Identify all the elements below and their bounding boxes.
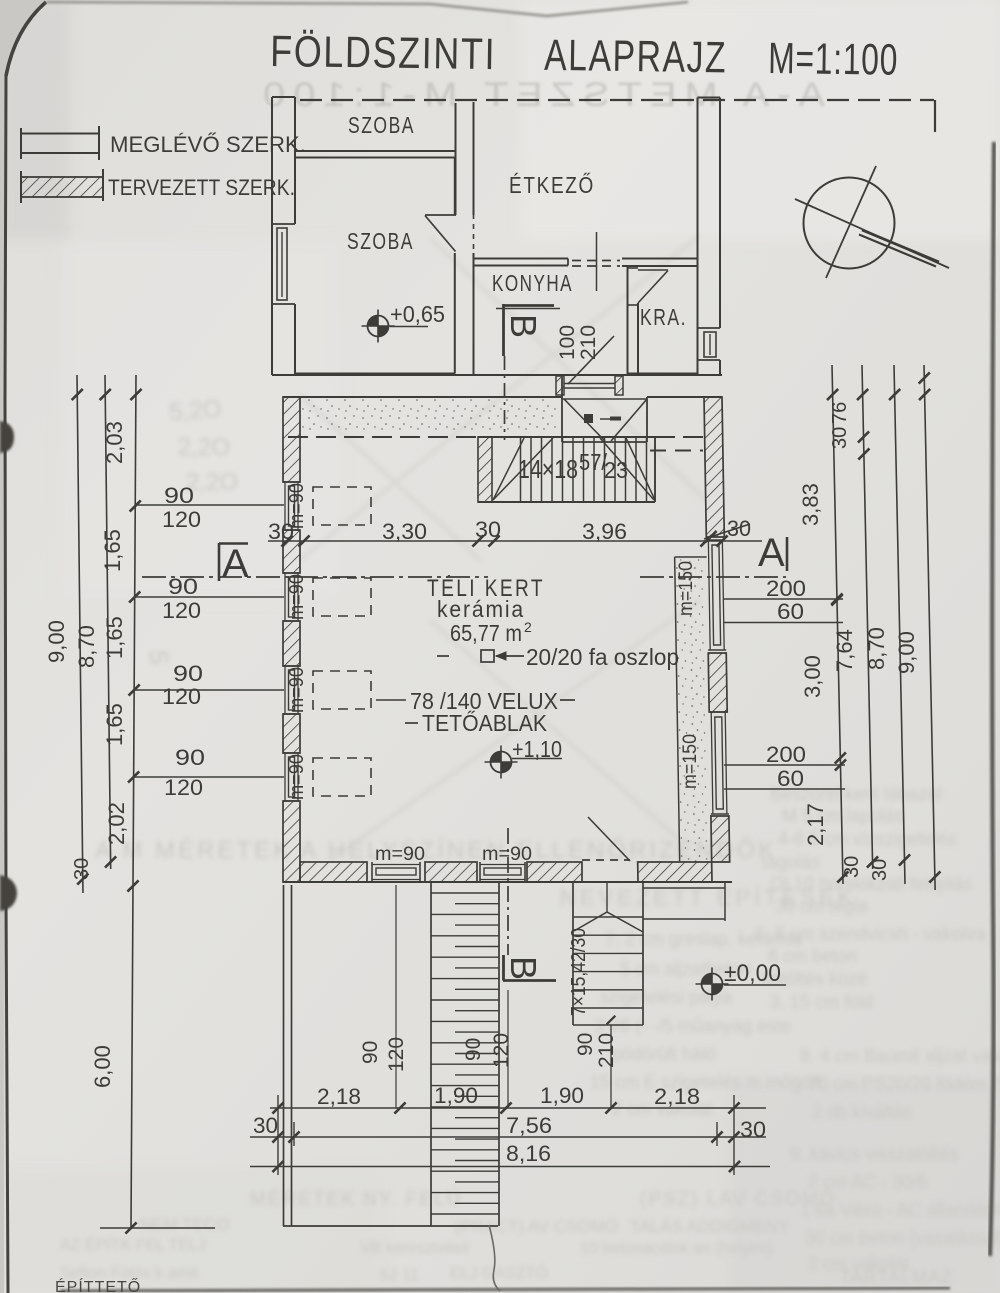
svg-text:3. 15 cm föld: 3. 15 cm föld	[770, 992, 873, 1012]
svg-text:VB keresztviteli: VB keresztviteli	[360, 1240, 469, 1257]
svg-text:210: 210	[595, 1033, 618, 1068]
svg-text:TETŐABLAK: TETŐABLAK	[422, 710, 548, 736]
svg-text:9. kavics visszatöltés: 9. kavics visszatöltés	[790, 1144, 958, 1164]
svg-text:1,65: 1,65	[102, 703, 127, 746]
svg-text:ELJ GASZTÓ: ELJ GASZTÓ	[450, 1263, 548, 1282]
svg-text:90: 90	[462, 1038, 485, 1061]
svg-text:2,02: 2,02	[104, 802, 129, 845]
svg-text:m=90: m=90	[286, 754, 308, 800]
svg-text:B: B	[503, 314, 544, 338]
svg-text:AZ ÉPÍTK FEL TELJ: AZ ÉPÍTK FEL TELJ	[60, 1235, 206, 1254]
svg-text:10 betonacélok an (helyen): 10 betonacélok an (helyen)	[580, 1240, 773, 1257]
svg-text:7,56: 7,56	[506, 1113, 552, 1138]
svg-text:ALAPRAJZ: ALAPRAJZ	[544, 31, 728, 83]
svg-text:8,16: 8,16	[506, 1141, 551, 1166]
svg-text:7. 2 cm greslap. kerámia: 7. 2 cm greslap. kerámia	[605, 929, 803, 949]
svg-text:6,00: 6,00	[90, 1045, 115, 1088]
svg-text:30: 30	[841, 856, 863, 878]
svg-text:30: 30	[71, 858, 93, 880]
svg-text:m=90: m=90	[482, 844, 532, 865]
svg-text:ÉTKEZŐ: ÉTKEZŐ	[509, 172, 595, 198]
svg-text:1,90: 1,90	[540, 1083, 584, 1108]
svg-text:2 db kiváltás: 2 db kiváltás	[812, 1102, 912, 1122]
svg-text:A: A	[758, 531, 785, 575]
svg-text:TERVEZETT SZERK.: TERVEZETT SZERK.	[108, 175, 295, 200]
svg-text:KRA.: KRA.	[640, 304, 687, 330]
svg-text:A M MÉRETEK A HELYSZÍNEN ELL: A M MÉRETEK A HELYSZÍNEN ELLENŐRIZENDŐK	[95, 837, 777, 864]
svg-text:90: 90	[173, 661, 203, 686]
svg-text:52 11: 52 11	[380, 1267, 419, 1284]
svg-text:65,77 m: 65,77 m	[450, 620, 522, 646]
svg-text:100: 100	[556, 325, 579, 360]
svg-text:1,65: 1,65	[100, 529, 125, 572]
svg-text:M 5 cm lapolás: M 5 cm lapolás	[782, 806, 903, 826]
svg-text:TARTALMAZ: TARTALMAZ	[840, 1267, 953, 1287]
svg-text:m=90: m=90	[375, 844, 425, 865]
svg-text:M=1:100: M=1:100	[768, 34, 899, 85]
svg-text:120: 120	[162, 598, 201, 623]
svg-text:30: 30	[253, 1113, 278, 1138]
svg-text:2,18: 2,18	[654, 1084, 700, 1109]
svg-text:30: 30	[268, 519, 294, 544]
svg-text:2,18: 2,18	[317, 1084, 361, 1109]
svg-text:NEM TECO: NEM TECO	[140, 1215, 229, 1234]
svg-text:A-A METSZET M-1:100: A-A METSZET M-1:100	[255, 76, 825, 114]
svg-text:SZOBA: SZOBA	[348, 112, 415, 138]
svg-text:TALÁS ADDIGMENY: TALÁS ADDIGMENY	[630, 1217, 789, 1236]
svg-text:A: A	[222, 542, 249, 586]
svg-text:m=150: m=150	[680, 734, 701, 789]
svg-text:5,2O: 5,2O	[169, 395, 223, 426]
svg-text:8. 4 cm Baumit aljzat vakola: 8. 4 cm Baumit aljzat vakolat	[800, 1046, 1000, 1066]
svg-text:+0,65: +0,65	[390, 301, 445, 327]
svg-text:(PSZ) LAV CSOMÓ: (PSZ) LAV CSOMÓ	[640, 1188, 836, 1210]
svg-text:90: 90	[574, 1033, 597, 1056]
svg-text:B: B	[503, 956, 544, 980]
svg-text:200: 200	[766, 576, 806, 601]
svg-text:2: 2	[524, 619, 532, 635]
svg-text:90: 90	[164, 483, 194, 508]
svg-text:6 cm beton: 6 cm beton	[768, 946, 857, 966]
svg-text:3,96: 3,96	[582, 519, 627, 544]
svg-text:m=150: m=150	[676, 561, 697, 616]
svg-text:2,17: 2,17	[803, 803, 828, 846]
svg-text:14×18: 14×18	[518, 454, 578, 484]
svg-text:m=90: m=90	[286, 667, 308, 713]
svg-text:SZOBA: SZOBA	[347, 228, 414, 254]
svg-text:120: 120	[162, 507, 201, 532]
svg-text:7,64: 7,64	[832, 629, 857, 672]
svg-text:15 cm E szigetelés m mögött: 15 cm E szigetelés m mögött	[590, 1072, 821, 1092]
svg-text:8,70: 8,70	[864, 627, 889, 670]
svg-text:30 cm beton (vasalással): 30 cm beton (vasalással)	[805, 1228, 1000, 1248]
svg-text:kerámia: kerámia	[437, 596, 525, 622]
svg-text:60: 60	[777, 766, 804, 791]
svg-text:m=90: m=90	[286, 574, 308, 620]
svg-text:KONYHA: KONYHA	[492, 270, 573, 296]
svg-text:30: 30	[869, 859, 891, 881]
svg-text:3,30: 3,30	[382, 519, 427, 544]
svg-text:9,00: 9,00	[44, 620, 69, 663]
svg-text:120: 120	[162, 684, 201, 709]
svg-text:5: 5	[144, 650, 174, 664]
svg-text:pödörült háló: pödörült háló	[612, 1044, 716, 1064]
svg-text:1,65: 1,65	[102, 616, 127, 659]
svg-text:90: 90	[168, 574, 198, 599]
svg-text:70 cm PS20/20 födém 70 kg: 70 cm PS20/20 födém 70 kg	[808, 1074, 1000, 1094]
svg-text:8,70: 8,70	[74, 625, 99, 668]
svg-text:MEGLÉVŐ SZERK.: MEGLÉVŐ SZERK.	[110, 132, 306, 157]
svg-text:±0,00: ±0,00	[724, 960, 781, 987]
svg-text:3,00: 3,00	[800, 655, 825, 698]
svg-text:2,2O: 2,2O	[178, 434, 230, 461]
svg-text:ÉPÍTTETŐ: ÉPÍTTETŐ	[55, 1277, 141, 1293]
svg-text:FÖLDSZINTI: FÖLDSZINTI	[270, 27, 497, 79]
svg-text:30: 30	[475, 517, 501, 542]
svg-text:7×15,42/30: 7×15,42/30	[568, 928, 590, 1016]
svg-text:200: 200	[766, 742, 806, 767]
svg-text:30: 30	[829, 427, 851, 449]
svg-text:23: 23	[604, 457, 628, 483]
svg-text:2,03: 2,03	[102, 421, 127, 464]
svg-text:3,83: 3,83	[798, 483, 823, 526]
svg-text:1,90: 1,90	[434, 1083, 478, 1108]
svg-text:90: 90	[359, 1041, 382, 1064]
svg-text:30: 30	[740, 1117, 766, 1142]
svg-text:20/20 fa oszlop: 20/20 fa oszlop	[526, 644, 679, 670]
svg-text:tagolás: tagolás	[762, 852, 820, 872]
svg-text:120: 120	[490, 1033, 513, 1068]
svg-text:9,00: 9,00	[894, 631, 919, 674]
svg-text:60: 60	[777, 599, 804, 624]
svg-text:30: 30	[727, 516, 751, 541]
svg-text:120: 120	[164, 775, 203, 800]
svg-text:120: 120	[385, 1037, 408, 1072]
svg-text:76: 76	[829, 402, 851, 424]
svg-text:90: 90	[175, 745, 205, 770]
svg-text:2 #6 (- -/5 műanyag este: 2 #6 (- -/5 műanyag este	[595, 1016, 791, 1036]
